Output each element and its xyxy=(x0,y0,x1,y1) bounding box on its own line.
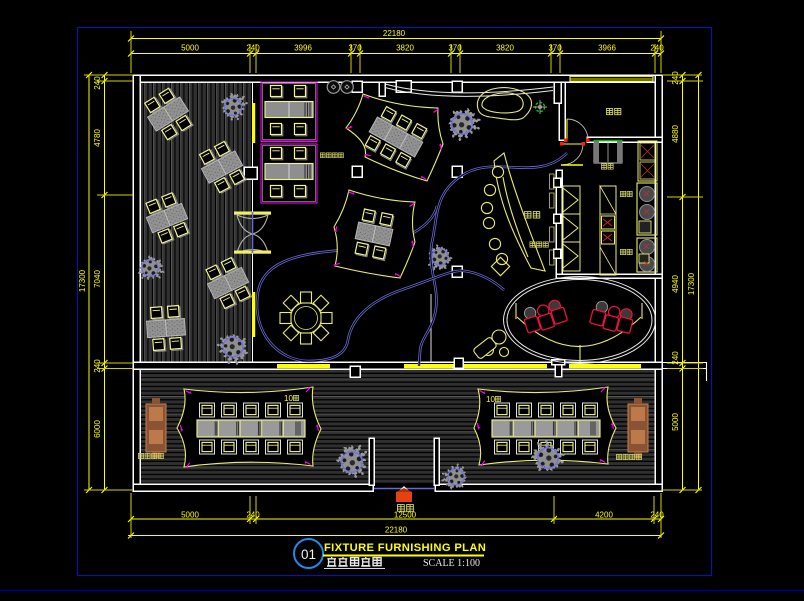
svg-text:3820: 3820 xyxy=(396,44,414,53)
svg-text:240: 240 xyxy=(671,71,680,85)
svg-text:5000: 5000 xyxy=(181,44,199,53)
svg-text:5000: 5000 xyxy=(181,511,199,520)
svg-text:370: 370 xyxy=(548,44,562,53)
svg-text:240: 240 xyxy=(650,511,664,520)
svg-text:4940: 4940 xyxy=(671,275,680,293)
svg-text:370: 370 xyxy=(448,44,462,53)
svg-text:240: 240 xyxy=(650,44,664,53)
svg-text:10: 10 xyxy=(284,394,293,403)
svg-text:240: 240 xyxy=(671,351,680,365)
svg-text:12500: 12500 xyxy=(394,511,417,520)
svg-text:240: 240 xyxy=(93,76,102,90)
svg-text:22180: 22180 xyxy=(385,526,408,535)
svg-text:01: 01 xyxy=(301,547,316,562)
svg-text:240: 240 xyxy=(246,44,260,53)
svg-text:4780: 4780 xyxy=(93,129,102,147)
svg-text:240: 240 xyxy=(246,511,260,520)
svg-text:17300: 17300 xyxy=(687,272,696,295)
svg-text:240: 240 xyxy=(93,359,102,373)
svg-text:SCALE 1:100: SCALE 1:100 xyxy=(423,558,480,569)
svg-text:4200: 4200 xyxy=(595,511,613,520)
svg-text:370: 370 xyxy=(348,44,362,53)
svg-text:FIXTURE FURNISHING PLAN: FIXTURE FURNISHING PLAN xyxy=(324,542,486,554)
svg-text:3820: 3820 xyxy=(496,44,514,53)
svg-text:5000: 5000 xyxy=(671,413,680,431)
svg-text:7040: 7040 xyxy=(93,270,102,288)
svg-text:10: 10 xyxy=(486,395,495,404)
svg-text:3996: 3996 xyxy=(294,44,312,53)
svg-text:22180: 22180 xyxy=(383,29,406,38)
svg-text:6000: 6000 xyxy=(93,420,102,438)
svg-text:4880: 4880 xyxy=(671,125,680,143)
svg-text:3966: 3966 xyxy=(598,44,616,53)
svg-text:17300: 17300 xyxy=(78,269,87,292)
